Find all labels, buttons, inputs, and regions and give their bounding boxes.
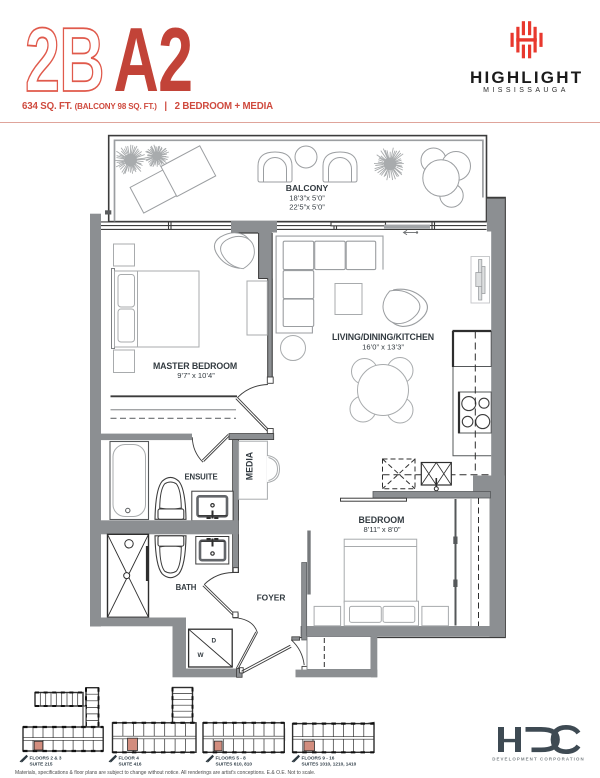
svg-text:22’5”x 5’0”: 22’5”x 5’0” [289, 203, 325, 212]
svg-text:W: W [198, 652, 205, 659]
svg-text:MASTER BEDROOM: MASTER BEDROOM [153, 361, 237, 371]
svg-text:BATH: BATH [176, 583, 197, 592]
svg-text:SUITE 215: SUITE 215 [30, 762, 53, 767]
svg-text:FLOORS 2 & 3: FLOORS 2 & 3 [30, 755, 62, 760]
svg-text:BALCONY: BALCONY [286, 183, 329, 193]
svg-text:SUITE 416: SUITE 416 [119, 762, 142, 767]
svg-text:FLOORS 5 - 8: FLOORS 5 - 8 [216, 755, 247, 760]
svg-text:DEVELOPMENT CORPORATION: DEVELOPMENT CORPORATION [492, 756, 585, 761]
svg-text:9’7” x 10’4”: 9’7” x 10’4” [177, 371, 215, 380]
svg-text:SUITES 1010, 1210, 1410: SUITES 1010, 1210, 1410 [302, 762, 357, 767]
svg-text:SUITES 610, 810: SUITES 610, 810 [216, 762, 253, 767]
svg-text:LIVING/DINING/KITCHEN: LIVING/DINING/KITCHEN [332, 332, 434, 342]
svg-text:FLOORS 9 - 16: FLOORS 9 - 16 [302, 755, 335, 760]
svg-text:FOYER: FOYER [257, 593, 286, 603]
svg-text:16’0” x 13’3”: 16’0” x 13’3” [362, 343, 404, 352]
svg-text:8’11” x 8’0”: 8’11” x 8’0” [363, 525, 400, 534]
svg-text:MEDIA: MEDIA [245, 451, 255, 480]
svg-text:FLOOR 4: FLOOR 4 [119, 755, 140, 760]
svg-text:ENSUITE: ENSUITE [184, 473, 217, 482]
svg-text:BEDROOM: BEDROOM [359, 515, 405, 525]
svg-text:D: D [212, 638, 217, 645]
svg-text:18’3”x 5’0”: 18’3”x 5’0” [289, 194, 325, 203]
